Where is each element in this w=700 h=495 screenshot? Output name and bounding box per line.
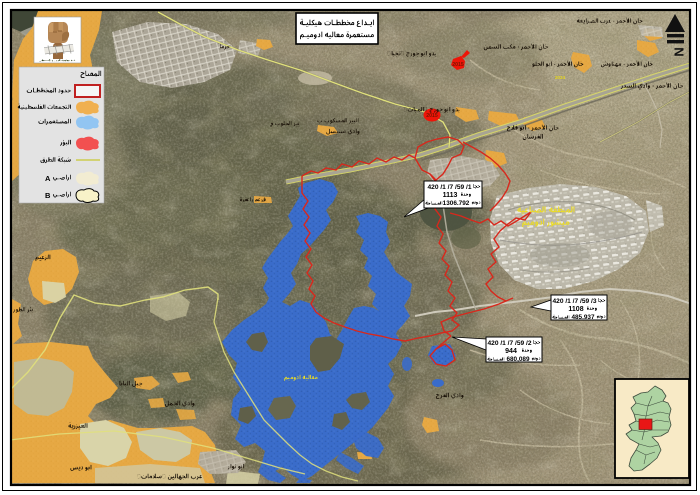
svg-text:N: N xyxy=(672,47,687,56)
svg-text:B: B xyxy=(45,191,51,200)
svg-text:2015: 2015 xyxy=(452,62,464,68)
svg-text:1108: 1108 xyxy=(568,306,583,313)
svg-text:420 /1 /7 /59 /2: 420 /1 /7 /59 /2 xyxy=(488,340,532,347)
svg-text:420 /1 /7 /59 /1: 420 /1 /7 /59 /1 xyxy=(428,184,472,191)
svg-text:2024: 2024 xyxy=(555,75,566,80)
svg-text:485.937: 485.937 xyxy=(571,314,595,321)
svg-text:A: A xyxy=(45,174,51,183)
svg-text:1306.792: 1306.792 xyxy=(443,200,470,207)
svg-text:1113: 1113 xyxy=(443,192,458,199)
svg-text:2015: 2015 xyxy=(426,113,438,119)
svg-text:944: 944 xyxy=(505,348,517,355)
svg-text:420 /1 /7 /59 /3: 420 /1 /7 /59 /3 xyxy=(553,298,597,305)
svg-text:680,089: 680,089 xyxy=(506,356,530,363)
